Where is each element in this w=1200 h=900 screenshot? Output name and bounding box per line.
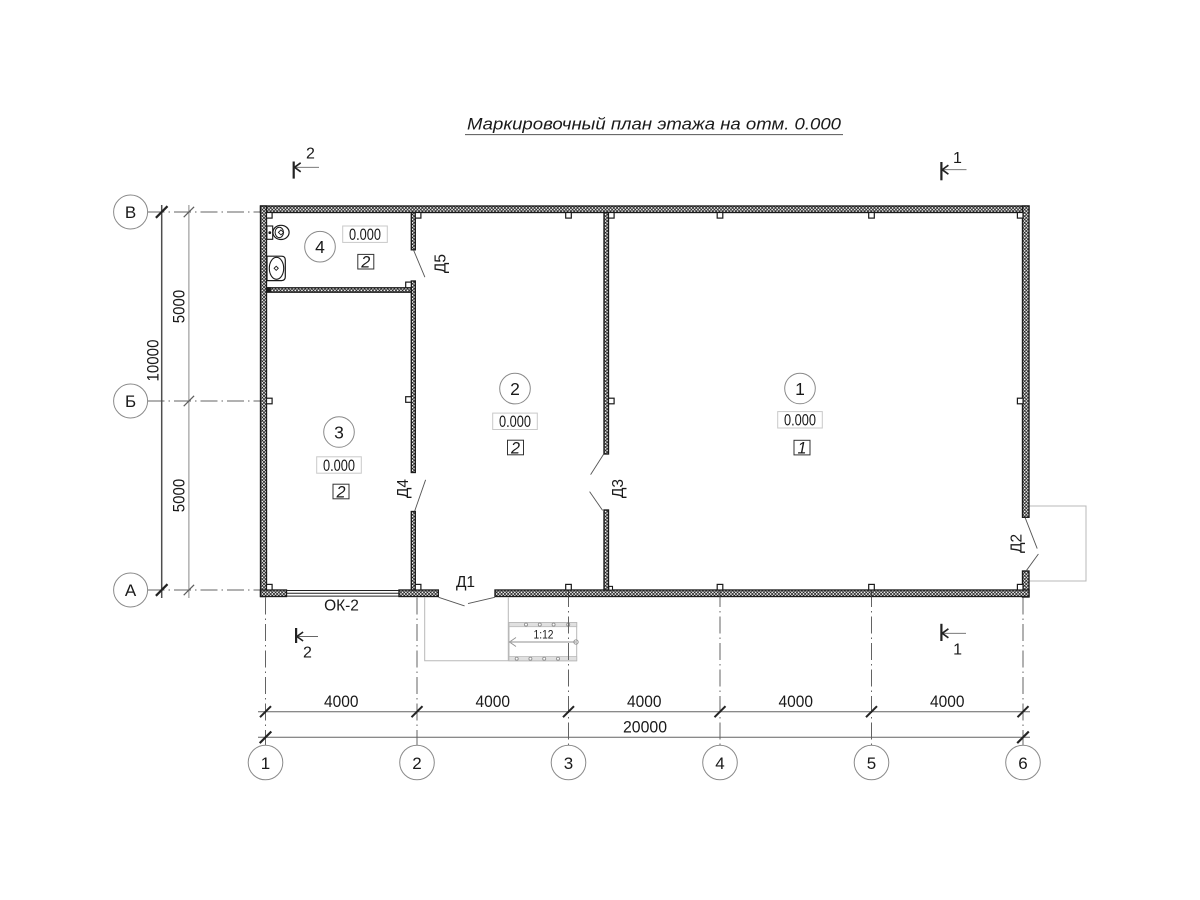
svg-text:4000: 4000 [324, 693, 359, 711]
svg-text:А: А [125, 581, 137, 600]
svg-text:4: 4 [315, 237, 325, 257]
svg-text:20000: 20000 [623, 719, 667, 737]
svg-text:Б: Б [125, 392, 136, 411]
svg-text:1: 1 [953, 642, 962, 659]
svg-text:Д2: Д2 [1009, 534, 1026, 553]
svg-text:0.000: 0.000 [499, 413, 531, 431]
svg-text:Д5: Д5 [433, 254, 450, 273]
svg-text:10000: 10000 [144, 340, 162, 382]
svg-text:2: 2 [303, 645, 312, 662]
svg-text:2: 2 [510, 379, 520, 399]
svg-text:5: 5 [867, 754, 876, 773]
svg-text:0.000: 0.000 [784, 412, 816, 430]
svg-text:4: 4 [715, 754, 724, 773]
svg-text:Д3: Д3 [610, 479, 627, 498]
svg-text:4000: 4000 [779, 693, 814, 711]
svg-text:4000: 4000 [476, 693, 511, 711]
svg-text:Д4: Д4 [395, 479, 412, 498]
svg-text:1: 1 [261, 754, 270, 773]
svg-text:0.000: 0.000 [349, 226, 381, 244]
svg-text:2: 2 [335, 484, 345, 502]
svg-text:3: 3 [334, 422, 344, 442]
svg-text:2: 2 [306, 146, 315, 163]
svg-text:5000: 5000 [171, 290, 189, 324]
svg-text:Д1: Д1 [456, 574, 475, 591]
svg-text:2: 2 [360, 254, 370, 272]
svg-text:4000: 4000 [627, 693, 662, 711]
svg-text:ОК-2: ОК-2 [324, 598, 359, 615]
svg-text:1: 1 [795, 379, 805, 399]
svg-text:6: 6 [1018, 754, 1027, 773]
svg-text:4000: 4000 [930, 693, 965, 711]
svg-text:2: 2 [412, 754, 421, 773]
svg-text:Маркировочный план этажа на от: Маркировочный план этажа на отм. 0.000 [467, 115, 842, 134]
svg-text:2: 2 [510, 440, 520, 458]
svg-text:5000: 5000 [171, 479, 189, 513]
svg-text:1:12: 1:12 [534, 630, 554, 642]
svg-text:3: 3 [564, 754, 573, 773]
svg-text:1: 1 [797, 440, 806, 458]
svg-text:В: В [125, 203, 136, 222]
svg-text:0.000: 0.000 [323, 457, 355, 475]
svg-text:1: 1 [953, 150, 962, 167]
